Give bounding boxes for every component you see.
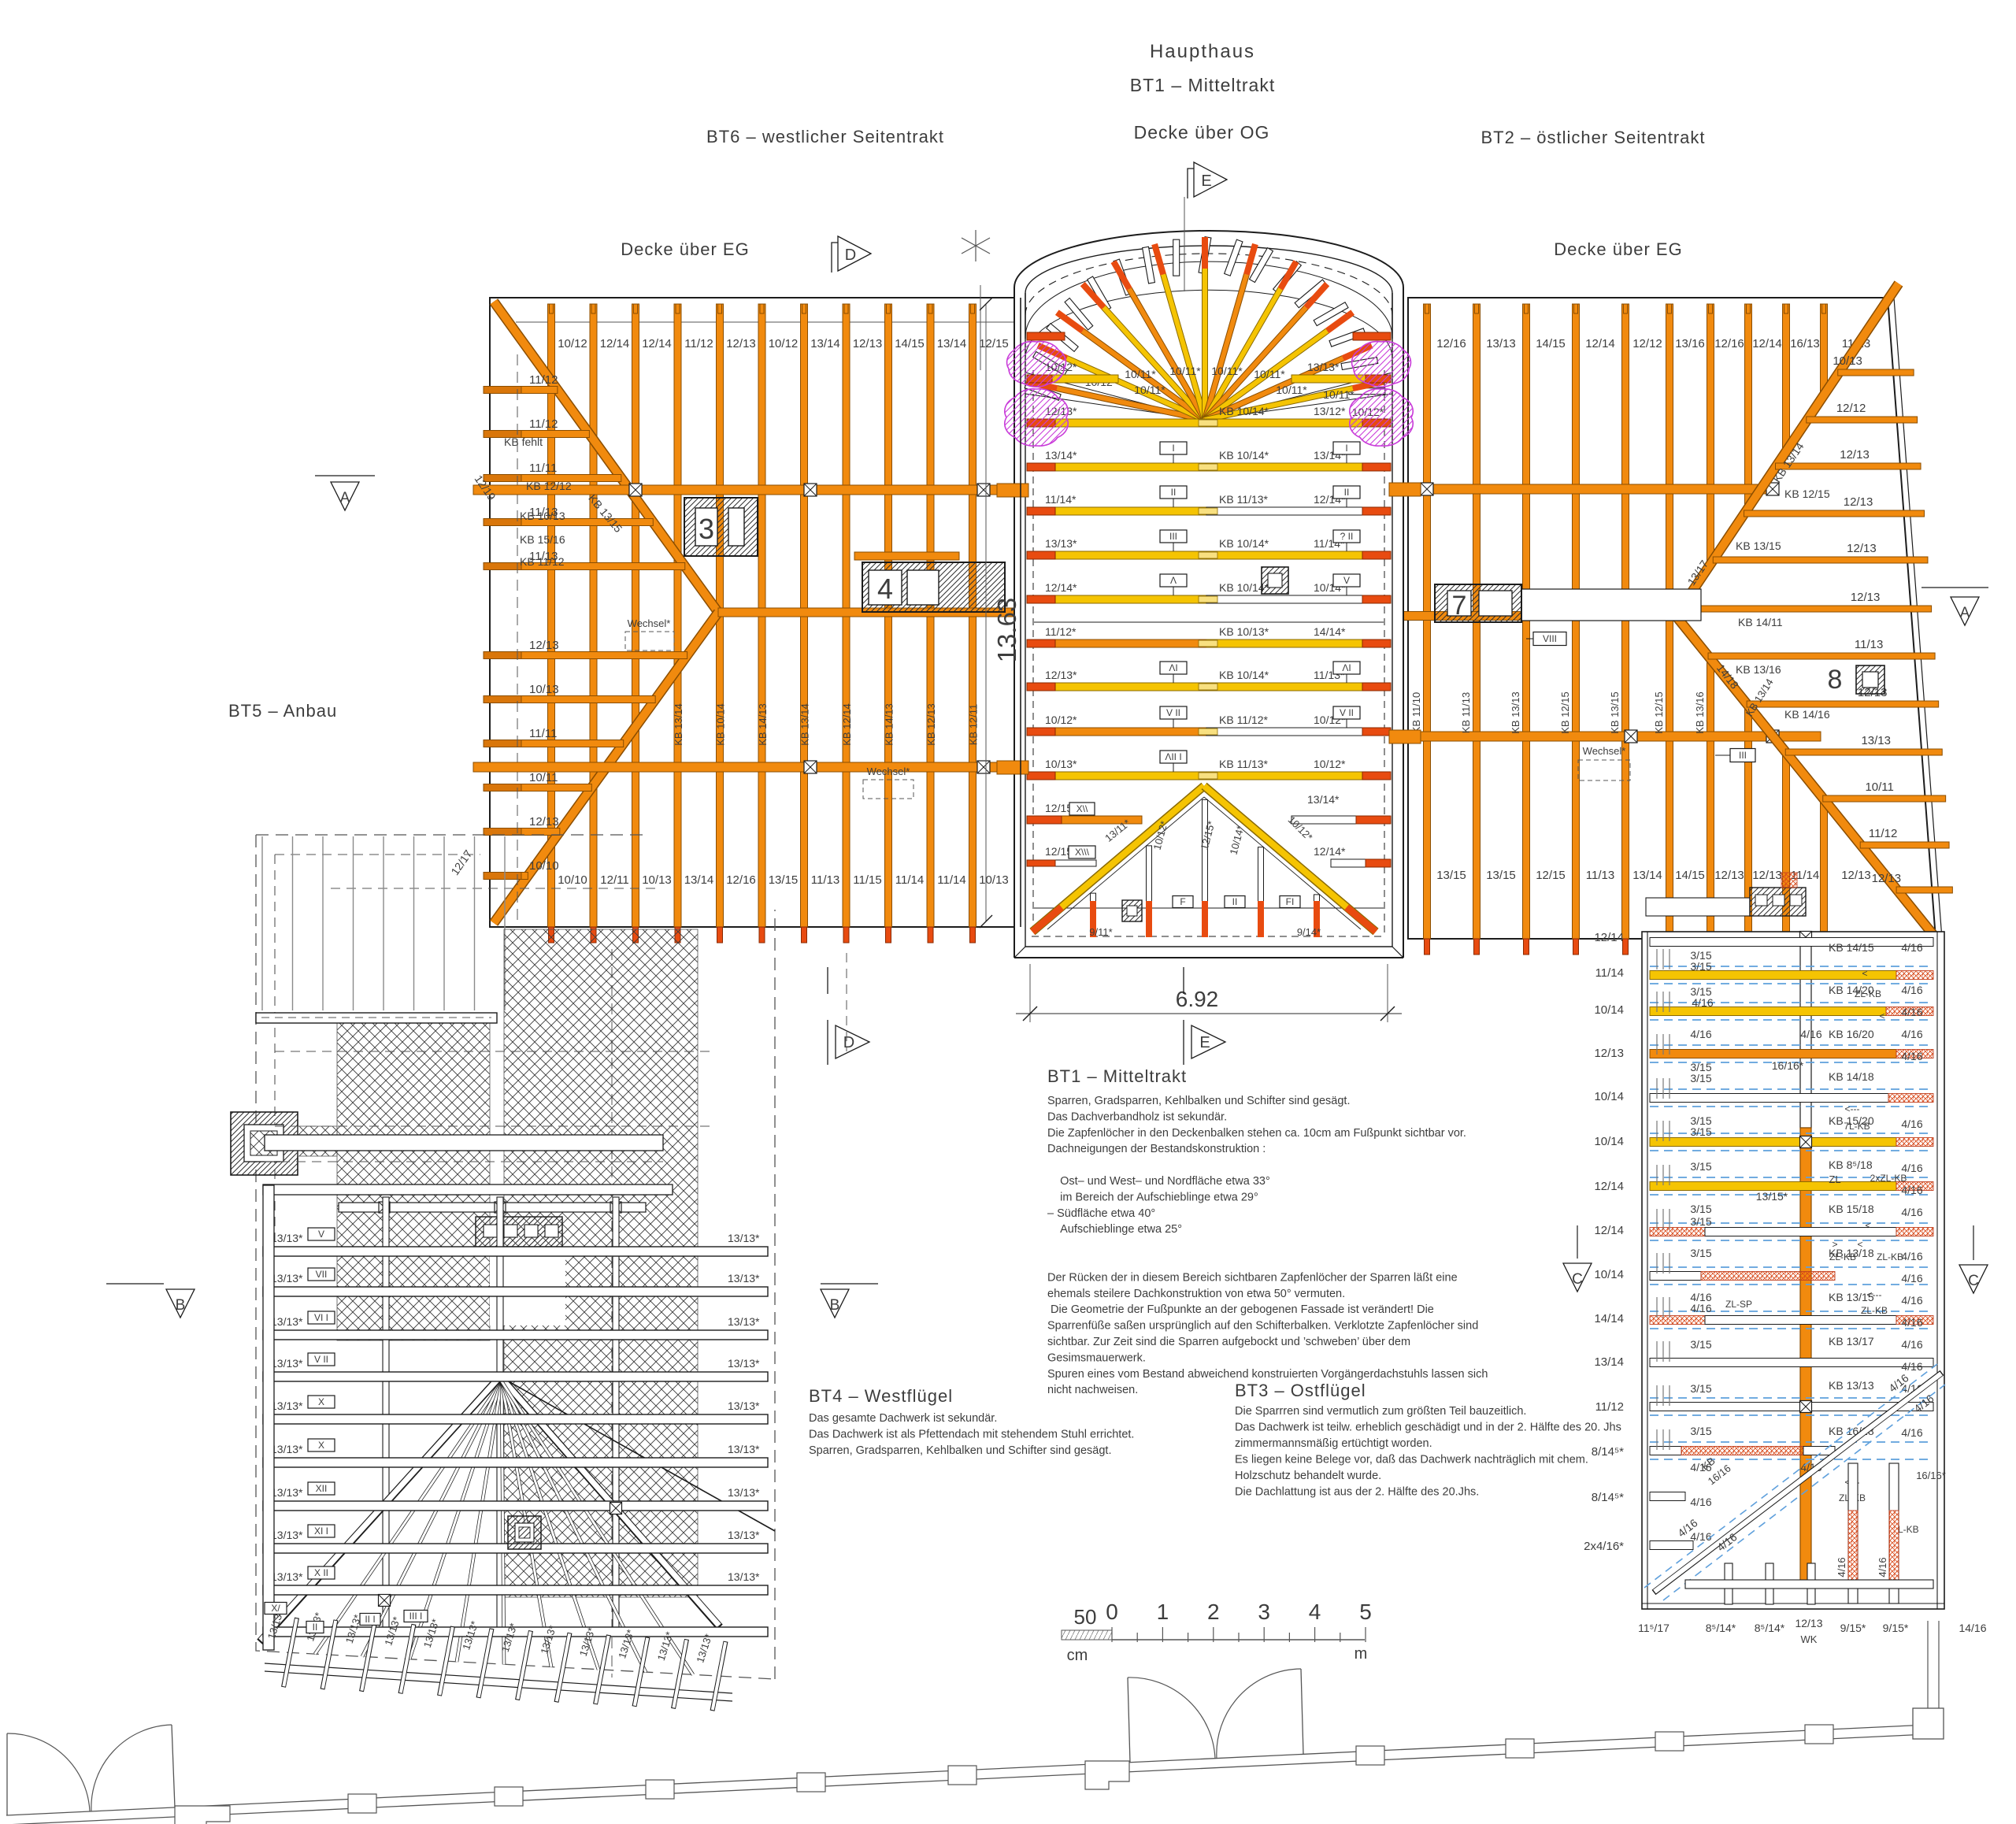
svg-text:11/13: 11/13 bbox=[811, 873, 839, 887]
svg-text:Das gesamte Dachwerk ist sekun: Das gesamte Dachwerk ist sekundär. bbox=[809, 1412, 997, 1425]
svg-text:3/15: 3/15 bbox=[1690, 1247, 1711, 1259]
svg-text:BT1 – Mitteltrakt: BT1 – Mitteltrakt bbox=[1047, 1066, 1187, 1086]
svg-text:2xZL-KB: 2xZL-KB bbox=[1870, 1173, 1907, 1184]
svg-text:Das Dachwerk ist teilw. erhebl: Das Dachwerk ist teilw. erheblich geschä… bbox=[1235, 1422, 1621, 1434]
svg-text:1: 1 bbox=[1157, 1600, 1169, 1624]
svg-text:4/16: 4/16 bbox=[1690, 1028, 1711, 1040]
svg-text:V II: V II bbox=[314, 1354, 328, 1365]
svg-text:B: B bbox=[176, 1297, 186, 1314]
svg-text:3/15: 3/15 bbox=[1690, 1215, 1711, 1228]
svg-text:VI I: VI I bbox=[314, 1312, 328, 1323]
svg-text:12/14: 12/14 bbox=[1752, 337, 1782, 350]
svg-text:KB 10/14*: KB 10/14* bbox=[1219, 537, 1269, 550]
svg-text:Sparrenfüße saßen ursprünglich: Sparrenfüße saßen ursprünglich auf den S… bbox=[1047, 1320, 1478, 1333]
svg-text:10/11*: 10/11* bbox=[1254, 368, 1285, 380]
svg-text:11/12: 11/12 bbox=[529, 417, 558, 431]
svg-text:KB 10/14: KB 10/14 bbox=[715, 703, 727, 746]
svg-text:VII: VII bbox=[316, 1269, 328, 1280]
svg-text:KB 15/18: KB 15/18 bbox=[1829, 1203, 1874, 1215]
svg-text:4/16: 4/16 bbox=[1901, 1184, 1922, 1196]
svg-text:12/13: 12/13 bbox=[1752, 869, 1782, 882]
svg-text:Decke über EG: Decke über EG bbox=[1554, 239, 1682, 259]
svg-text:13.63: 13.63 bbox=[992, 598, 1021, 663]
svg-text:13/13*: 13/13* bbox=[271, 1529, 303, 1541]
svg-text:BT4 – Westflügel: BT4 – Westflügel bbox=[809, 1386, 953, 1406]
svg-text:KB 11/12*: KB 11/12* bbox=[1219, 714, 1269, 726]
svg-text:13/16: 13/16 bbox=[1675, 337, 1705, 350]
svg-text:10/11: 10/11 bbox=[529, 771, 558, 784]
svg-text:14/15: 14/15 bbox=[1536, 337, 1566, 350]
svg-text:13/13*: 13/13* bbox=[1307, 361, 1340, 373]
svg-text:13/15*: 13/15* bbox=[1756, 1190, 1788, 1203]
svg-text:8⁵/14*: 8⁵/14* bbox=[1755, 1622, 1785, 1634]
svg-text:13/13: 13/13 bbox=[1486, 337, 1516, 350]
svg-text:X II: X II bbox=[314, 1567, 328, 1578]
svg-text:KB 12/13: KB 12/13 bbox=[925, 703, 937, 746]
svg-text:Wechsel*: Wechsel* bbox=[1583, 745, 1626, 757]
svg-text:13/13*: 13/13* bbox=[271, 1272, 303, 1285]
svg-text:KB 12/14: KB 12/14 bbox=[841, 703, 853, 746]
svg-text:4/16: 4/16 bbox=[1901, 1028, 1922, 1040]
svg-text:10/14: 10/14 bbox=[1594, 1090, 1624, 1103]
svg-text:Die Dachlattung ist aus der 2.: Die Dachlattung ist aus der 2. Hälfte de… bbox=[1235, 1486, 1479, 1499]
svg-text:Dachneigungen der Bestandskons: Dachneigungen der Bestandskonstruktion : bbox=[1047, 1143, 1266, 1155]
svg-text:9/14*: 9/14* bbox=[1297, 926, 1321, 938]
svg-text:E: E bbox=[1201, 172, 1211, 190]
svg-text:V: V bbox=[1343, 575, 1350, 586]
svg-text:10/13: 10/13 bbox=[979, 873, 1009, 887]
svg-text:Sparren, Gradsparren, Kehlbalk: Sparren, Gradsparren, Kehlbalken und Sch… bbox=[1047, 1095, 1350, 1107]
svg-text:12/13: 12/13 bbox=[1872, 872, 1902, 885]
svg-text:F: F bbox=[1180, 896, 1185, 907]
svg-text:12/14*: 12/14* bbox=[1314, 845, 1346, 858]
svg-text:13/13*: 13/13* bbox=[271, 1400, 303, 1412]
svg-text:12/12: 12/12 bbox=[1632, 337, 1662, 350]
svg-text:X: X bbox=[318, 1440, 324, 1451]
svg-text:13/13*: 13/13* bbox=[271, 1570, 303, 1583]
svg-text:WK: WK bbox=[1801, 1633, 1818, 1645]
svg-text:KB 11/12: KB 11/12 bbox=[520, 555, 565, 568]
svg-text:X/: X/ bbox=[271, 1603, 280, 1614]
svg-text:Decke über OG: Decke über OG bbox=[1134, 122, 1270, 143]
svg-text:3/15: 3/15 bbox=[1690, 1203, 1711, 1215]
svg-text:KB 10/13*: KB 10/13* bbox=[1219, 625, 1269, 638]
svg-text:4/16: 4/16 bbox=[1690, 1496, 1711, 1508]
svg-text:Holzschutz behandelt wurde.: Holzschutz behandelt wurde. bbox=[1235, 1470, 1381, 1482]
svg-text:KB 14/13: KB 14/13 bbox=[757, 703, 769, 746]
svg-text:3/15: 3/15 bbox=[1690, 1338, 1711, 1351]
svg-text:B: B bbox=[830, 1297, 840, 1314]
svg-text:10/10: 10/10 bbox=[529, 859, 559, 873]
svg-text:ZL: ZL bbox=[1829, 1173, 1840, 1185]
svg-text:Das Dachwerk ist als Pfettenda: Das Dachwerk ist als Pfettendach mit ste… bbox=[809, 1429, 1134, 1441]
svg-text:14/15: 14/15 bbox=[895, 337, 925, 350]
svg-text:10/11*: 10/11* bbox=[1134, 384, 1165, 396]
svg-text:13/13*: 13/13* bbox=[271, 1486, 303, 1499]
svg-text:14/14: 14/14 bbox=[1594, 1312, 1624, 1325]
svg-text:KB 13/16: KB 13/16 bbox=[1736, 663, 1781, 676]
svg-text:C: C bbox=[1572, 1271, 1583, 1288]
svg-text:10/14: 10/14 bbox=[1594, 1003, 1624, 1017]
svg-text:KB 8⁵/18: KB 8⁵/18 bbox=[1829, 1159, 1873, 1171]
svg-text:11/14: 11/14 bbox=[895, 873, 924, 887]
svg-text:Die Geometrie der Fußpunkte an: Die Geometrie der Fußpunkte an der gebog… bbox=[1047, 1303, 1434, 1316]
svg-text:4/16: 4/16 bbox=[1901, 984, 1922, 996]
svg-text:2x4/16*: 2x4/16* bbox=[1584, 1540, 1624, 1553]
svg-text:KB 11/10: KB 11/10 bbox=[1410, 692, 1422, 734]
svg-text:Es liegen keine Belege vor, da: Es liegen keine Belege vor, daß das Dach… bbox=[1235, 1454, 1588, 1466]
svg-text:13/14: 13/14 bbox=[1632, 869, 1662, 882]
svg-text:4/16: 4/16 bbox=[1901, 1360, 1922, 1373]
svg-text:KB 13/17: KB 13/17 bbox=[1829, 1335, 1874, 1348]
svg-text:12/16: 12/16 bbox=[1436, 337, 1466, 350]
svg-text:4/16: 4/16 bbox=[1901, 1338, 1922, 1351]
svg-text:10/14: 10/14 bbox=[1594, 1135, 1624, 1148]
svg-text:ZL-KB: ZL-KB bbox=[1861, 1305, 1888, 1316]
svg-text:KB 12/12: KB 12/12 bbox=[526, 480, 572, 492]
svg-text:4/16: 4/16 bbox=[1901, 1118, 1922, 1130]
svg-text:12/15: 12/15 bbox=[1536, 869, 1566, 882]
svg-text:KB 16/20: KB 16/20 bbox=[1829, 1028, 1874, 1040]
svg-text:ΛI: ΛI bbox=[1342, 662, 1351, 673]
svg-text:10/13: 10/13 bbox=[642, 873, 672, 887]
svg-text:13/14: 13/14 bbox=[810, 337, 840, 350]
svg-text:Die Sparrren sind vermutlich z: Die Sparrren sind vermutlich zum größten… bbox=[1235, 1405, 1526, 1418]
svg-text:4/16: 4/16 bbox=[1800, 1028, 1821, 1040]
svg-text:12/13: 12/13 bbox=[529, 639, 559, 652]
svg-text:13/13*: 13/13* bbox=[271, 1443, 303, 1455]
svg-text:13/14*: 13/14* bbox=[1307, 793, 1340, 806]
svg-text:<: < bbox=[1862, 968, 1867, 979]
svg-text:BT3 – Ostflügel: BT3 – Ostflügel bbox=[1235, 1381, 1366, 1400]
svg-text:13/15: 13/15 bbox=[1486, 869, 1516, 882]
svg-text:V II: V II bbox=[1340, 707, 1354, 718]
svg-text:13/13*: 13/13* bbox=[271, 1315, 303, 1328]
svg-text:13/14: 13/14 bbox=[684, 873, 714, 887]
svg-text:II: II bbox=[1171, 487, 1177, 498]
svg-text:10/12*: 10/12* bbox=[1314, 758, 1346, 770]
svg-text:11/13: 11/13 bbox=[1586, 869, 1614, 882]
svg-text:10/11*: 10/11* bbox=[1169, 365, 1201, 377]
svg-text:9/15*: 9/15* bbox=[1840, 1622, 1866, 1634]
svg-text:KB 14/11: KB 14/11 bbox=[1738, 616, 1783, 628]
svg-text:11⁵/17: 11⁵/17 bbox=[1638, 1622, 1669, 1634]
svg-text:V II: V II bbox=[1166, 707, 1180, 718]
svg-text:KB 11/13*: KB 11/13* bbox=[1219, 493, 1269, 506]
svg-text:13/13*: 13/13* bbox=[728, 1272, 760, 1285]
svg-text:KB 15/16: KB 15/16 bbox=[520, 533, 565, 546]
svg-text:13/12*: 13/12* bbox=[1314, 405, 1346, 417]
svg-text:KB 13/13: KB 13/13 bbox=[1510, 691, 1521, 734]
svg-text:4/16: 4/16 bbox=[1901, 941, 1922, 954]
svg-text:I: I bbox=[1172, 443, 1174, 454]
svg-text:KB fehlt: KB fehlt bbox=[504, 436, 543, 448]
svg-text:11/12: 11/12 bbox=[1869, 827, 1897, 840]
svg-text:9/11*: 9/11* bbox=[1089, 926, 1112, 938]
svg-text:9/15*: 9/15* bbox=[1883, 1622, 1909, 1634]
svg-text:KB 13/15: KB 13/15 bbox=[1736, 539, 1781, 552]
svg-text:7: 7 bbox=[1452, 591, 1467, 621]
svg-text:III I: III I bbox=[409, 1611, 423, 1622]
svg-text:11/14: 11/14 bbox=[937, 873, 965, 887]
svg-text:II: II bbox=[313, 1622, 318, 1633]
svg-text:4/16: 4/16 bbox=[1877, 1557, 1888, 1577]
svg-text:Ost– und West– und Nordfläche: Ost– und West– und Nordfläche etwa 33° bbox=[1047, 1175, 1270, 1188]
svg-text:<---: <--- bbox=[1867, 1289, 1882, 1300]
svg-text:3/15: 3/15 bbox=[1690, 1125, 1711, 1138]
svg-text:4/16: 4/16 bbox=[1690, 1302, 1711, 1314]
svg-text:KB 12/15: KB 12/15 bbox=[1653, 691, 1665, 734]
svg-text:KB 10/14*: KB 10/14* bbox=[1219, 669, 1269, 681]
svg-text:KB 14/18: KB 14/18 bbox=[1829, 1070, 1874, 1083]
svg-text:12/14: 12/14 bbox=[1594, 1224, 1624, 1237]
svg-text:12/17: 12/17 bbox=[448, 847, 474, 877]
svg-text:KB 10/14*: KB 10/14* bbox=[1219, 405, 1269, 417]
svg-text:Die Zapfenlöcher in den Decken: Die Zapfenlöcher in den Deckenbalken ste… bbox=[1047, 1127, 1466, 1140]
svg-text:X\\: X\\ bbox=[1077, 803, 1088, 814]
svg-text:13/14: 13/14 bbox=[1594, 1355, 1624, 1369]
svg-text:13/13*: 13/13* bbox=[271, 1357, 303, 1370]
svg-text:10/14: 10/14 bbox=[1594, 1268, 1624, 1281]
svg-text:8/14⁵*: 8/14⁵* bbox=[1592, 1491, 1624, 1504]
svg-text:4/16: 4/16 bbox=[1901, 1206, 1922, 1218]
svg-text:10/10: 10/10 bbox=[558, 873, 587, 887]
svg-text:FI: FI bbox=[1286, 896, 1295, 907]
svg-text:II I: II I bbox=[365, 1614, 375, 1625]
svg-text:11/12: 11/12 bbox=[1595, 1400, 1624, 1414]
svg-text:14/14*: 14/14* bbox=[1314, 625, 1346, 638]
svg-text:4: 4 bbox=[1309, 1600, 1321, 1624]
svg-text:12/13: 12/13 bbox=[529, 815, 559, 829]
svg-text:13/13*: 13/13* bbox=[728, 1486, 760, 1499]
svg-text:13/13*: 13/13* bbox=[728, 1529, 760, 1541]
svg-text:16/16*: 16/16* bbox=[1772, 1059, 1804, 1072]
svg-text:10/13: 10/13 bbox=[529, 683, 559, 696]
svg-text:ZL-SP: ZL-SP bbox=[1725, 1299, 1752, 1310]
svg-text:Wechsel*: Wechsel* bbox=[867, 766, 910, 777]
svg-text:V: V bbox=[318, 1229, 324, 1240]
svg-text:KB 14/13: KB 14/13 bbox=[884, 703, 895, 746]
svg-text:12/14*: 12/14* bbox=[1045, 581, 1077, 594]
svg-text:11/13: 11/13 bbox=[1855, 638, 1883, 651]
svg-text:4/16: 4/16 bbox=[1901, 1272, 1922, 1285]
svg-text:im Bereich der Aufschieblinge: im Bereich der Aufschieblinge etwa 29° bbox=[1047, 1191, 1258, 1203]
svg-text:12/13: 12/13 bbox=[726, 337, 756, 350]
svg-text:Der Rücken der in diesem Berei: Der Rücken der in diesem Bereich sichtba… bbox=[1047, 1271, 1458, 1284]
svg-text:Wechsel*: Wechsel* bbox=[628, 617, 671, 629]
svg-text:<---: <--- bbox=[1845, 1103, 1860, 1114]
svg-text:11/15: 11/15 bbox=[853, 873, 881, 887]
svg-text:Decke über EG: Decke über EG bbox=[621, 239, 749, 259]
svg-text:Gesimsmauerwerk.: Gesimsmauerwerk. bbox=[1047, 1351, 1146, 1364]
svg-text:C: C bbox=[1968, 1273, 1979, 1289]
svg-text:BT2 – östlicher Seitentrakt: BT2 – östlicher Seitentrakt bbox=[1480, 128, 1705, 147]
svg-text:8/14⁵*: 8/14⁵* bbox=[1592, 1445, 1624, 1459]
svg-text:12/14: 12/14 bbox=[600, 337, 630, 350]
svg-text:X: X bbox=[318, 1396, 324, 1407]
svg-text:VIII: VIII bbox=[1543, 633, 1557, 644]
svg-text:12/11: 12/11 bbox=[600, 873, 628, 887]
svg-text:13/13*: 13/13* bbox=[728, 1400, 760, 1412]
svg-text:<: < bbox=[1879, 1010, 1884, 1021]
svg-text:KB 12/11: KB 12/11 bbox=[968, 704, 980, 746]
svg-text:ZL-KB: ZL-KB bbox=[1855, 988, 1881, 999]
svg-text:A: A bbox=[340, 490, 350, 506]
svg-text:13/14*: 13/14* bbox=[1045, 449, 1077, 462]
svg-text:D: D bbox=[845, 247, 856, 264]
svg-text:10/11*: 10/11* bbox=[1323, 388, 1354, 401]
svg-text:4/16: 4/16 bbox=[1901, 1250, 1922, 1262]
svg-text:12/16: 12/16 bbox=[1714, 337, 1744, 350]
svg-text:11/11: 11/11 bbox=[529, 462, 557, 475]
svg-text:10/11: 10/11 bbox=[1865, 780, 1893, 794]
svg-text:4/16: 4/16 bbox=[1901, 1426, 1922, 1439]
svg-text:8⁵/14*: 8⁵/14* bbox=[1706, 1622, 1736, 1634]
svg-text:13/13*: 13/13* bbox=[728, 1232, 760, 1244]
svg-text:III: III bbox=[1169, 531, 1177, 542]
svg-text:12/13: 12/13 bbox=[1847, 542, 1877, 555]
svg-text:12/13: 12/13 bbox=[853, 337, 883, 350]
svg-text:12/13: 12/13 bbox=[1714, 869, 1744, 882]
svg-text:E: E bbox=[1199, 1034, 1210, 1051]
svg-text:Haupthaus: Haupthaus bbox=[1150, 41, 1255, 62]
svg-text:12/13: 12/13 bbox=[1840, 448, 1870, 462]
svg-text:12/14: 12/14 bbox=[1594, 931, 1624, 944]
svg-text:14/15: 14/15 bbox=[1675, 869, 1705, 882]
svg-text:Sparren, Gradsparren, Kehlbalk: Sparren, Gradsparren, Kehlbalken und Sch… bbox=[809, 1444, 1111, 1457]
svg-text:12/13: 12/13 bbox=[1795, 1617, 1822, 1629]
svg-text:I: I bbox=[1345, 443, 1347, 454]
svg-text:<: < bbox=[1857, 1239, 1862, 1250]
svg-text:5: 5 bbox=[1359, 1600, 1372, 1624]
svg-text:2: 2 bbox=[1207, 1600, 1220, 1624]
svg-text:50: 50 bbox=[1074, 1605, 1097, 1629]
svg-text:10/13*: 10/13* bbox=[1045, 758, 1077, 770]
svg-text:10/11*: 10/11* bbox=[1276, 384, 1307, 396]
svg-text:10/12*: 10/12* bbox=[1045, 714, 1077, 726]
svg-text:12/16: 12/16 bbox=[726, 873, 756, 887]
svg-text:7L-KB: 7L-KB bbox=[1844, 1121, 1870, 1132]
svg-text:3/15: 3/15 bbox=[1690, 960, 1711, 973]
svg-text:4: 4 bbox=[877, 573, 893, 605]
svg-text:8: 8 bbox=[1828, 665, 1843, 695]
svg-text:16/13: 16/13 bbox=[1790, 337, 1820, 350]
svg-text:III: III bbox=[1739, 750, 1747, 761]
svg-text:ehemals steilere Dachkonstrukt: ehemals steilere Dachkonstruktion von et… bbox=[1047, 1288, 1345, 1300]
svg-text:4/16: 4/16 bbox=[1690, 1530, 1711, 1543]
svg-text:BT5 – Anbau: BT5 – Anbau bbox=[228, 701, 337, 721]
svg-text:13/13*: 13/13* bbox=[728, 1357, 760, 1370]
svg-text:nicht nachweisen.: nicht nachweisen. bbox=[1047, 1384, 1138, 1396]
svg-text:KB 11/13: KB 11/13 bbox=[1460, 692, 1472, 734]
svg-text:zimmermannsmäßig ertüchtigt wo: zimmermannsmäßig ertüchtigt worden. bbox=[1235, 1437, 1432, 1450]
svg-text:? II: ? II bbox=[1340, 531, 1354, 542]
svg-text:KB 13/14: KB 13/14 bbox=[673, 703, 684, 746]
svg-text:KB 13/13: KB 13/13 bbox=[1829, 1379, 1874, 1392]
svg-text:12/13*: 12/13* bbox=[1045, 669, 1077, 681]
svg-text:KB 13/14: KB 13/14 bbox=[799, 703, 811, 746]
svg-text:3/15: 3/15 bbox=[1690, 1072, 1711, 1084]
svg-text:12/13: 12/13 bbox=[1844, 495, 1873, 509]
svg-text:10/12: 10/12 bbox=[769, 337, 799, 350]
svg-text:13/13*: 13/13* bbox=[728, 1315, 760, 1328]
svg-text:KB 14/15: KB 14/15 bbox=[1829, 941, 1874, 954]
svg-text:10/13: 10/13 bbox=[1833, 354, 1862, 368]
svg-text:KB 10/14*: KB 10/14* bbox=[1219, 449, 1269, 462]
svg-text:D: D bbox=[843, 1034, 854, 1051]
svg-text:KB 10/13: KB 10/13 bbox=[520, 510, 565, 522]
svg-text:13/15: 13/15 bbox=[769, 873, 799, 887]
svg-text:ΛII I: ΛII I bbox=[1165, 751, 1181, 762]
svg-text:10/11*: 10/11* bbox=[1211, 365, 1243, 377]
svg-text:10/12: 10/12 bbox=[558, 337, 587, 350]
svg-text:<: < bbox=[1865, 1220, 1870, 1231]
svg-text:12/15: 12/15 bbox=[979, 337, 1009, 350]
svg-text:6.92: 6.92 bbox=[1176, 987, 1219, 1011]
svg-text:13/13*: 13/13* bbox=[1045, 537, 1077, 550]
svg-text:4/16: 4/16 bbox=[1901, 1050, 1922, 1062]
svg-text:11/12: 11/12 bbox=[529, 373, 558, 387]
svg-text:10/11*: 10/11* bbox=[1125, 368, 1156, 380]
svg-text:12/14: 12/14 bbox=[1585, 337, 1615, 350]
svg-text:ZL-KB: ZL-KB bbox=[1829, 1251, 1856, 1262]
svg-text:12/13: 12/13 bbox=[1841, 869, 1871, 882]
svg-text:>: > bbox=[1832, 1239, 1837, 1250]
svg-text:3: 3 bbox=[699, 513, 714, 545]
svg-text:4/16: 4/16 bbox=[1901, 1294, 1922, 1307]
svg-text:12/14: 12/14 bbox=[1594, 1180, 1624, 1193]
svg-text:11/12*: 11/12* bbox=[1045, 625, 1077, 638]
svg-text:Spuren eines vom Bestand abwei: Spuren eines vom Bestand abweichend kons… bbox=[1047, 1368, 1488, 1381]
svg-text:ΛI: ΛI bbox=[1169, 662, 1177, 673]
svg-text:12/13: 12/13 bbox=[1851, 591, 1881, 604]
svg-text:KB 11/13*: KB 11/13* bbox=[1219, 758, 1269, 770]
svg-text:4/16: 4/16 bbox=[1901, 1006, 1922, 1018]
svg-text:13/13: 13/13 bbox=[1861, 734, 1891, 747]
svg-text:13/13*: 13/13* bbox=[271, 1232, 303, 1244]
svg-text:Das Dachverbandholz ist sekund: Das Dachverbandholz ist sekundär. bbox=[1047, 1110, 1227, 1123]
svg-text:BT1 – Mitteltrakt: BT1 – Mitteltrakt bbox=[1130, 75, 1275, 95]
svg-text:4/16: 4/16 bbox=[1836, 1557, 1847, 1577]
svg-text:II: II bbox=[1232, 896, 1238, 907]
svg-text:11/14: 11/14 bbox=[1595, 966, 1624, 980]
svg-text:16/16*: 16/16* bbox=[1916, 1470, 1946, 1481]
svg-text:Aufschieblinge etwa 25°: Aufschieblinge etwa 25° bbox=[1047, 1223, 1182, 1236]
svg-text:13/13*: 13/13* bbox=[728, 1570, 760, 1583]
svg-text:KB 13/16: KB 13/16 bbox=[1694, 691, 1706, 734]
svg-text:XII: XII bbox=[316, 1483, 328, 1494]
svg-text:XI I: XI I bbox=[314, 1526, 328, 1537]
svg-text:13/13*: 13/13* bbox=[728, 1443, 760, 1455]
svg-text:A: A bbox=[1960, 605, 1970, 621]
svg-text:ZL-KB: ZL-KB bbox=[1877, 1251, 1903, 1262]
svg-text:BT6 – westlicher Seitentrakt: BT6 – westlicher Seitentrakt bbox=[706, 127, 944, 146]
svg-text:3/15: 3/15 bbox=[1690, 1160, 1711, 1173]
svg-text:12/14: 12/14 bbox=[642, 337, 672, 350]
svg-text:13/15: 13/15 bbox=[1436, 869, 1466, 882]
svg-text:14/16: 14/16 bbox=[1959, 1622, 1986, 1634]
svg-text:11/12: 11/12 bbox=[684, 337, 713, 350]
svg-text:13/13*: 13/13* bbox=[694, 1633, 714, 1664]
svg-text:3: 3 bbox=[1258, 1600, 1270, 1624]
svg-text:13/14: 13/14 bbox=[937, 337, 967, 350]
svg-text:X\\\: X\\\ bbox=[1075, 847, 1090, 858]
svg-text:11/14*: 11/14* bbox=[1045, 493, 1077, 506]
svg-text:3/15: 3/15 bbox=[1690, 1382, 1711, 1395]
svg-text:m: m bbox=[1354, 1645, 1368, 1663]
svg-text:12/13: 12/13 bbox=[1594, 1047, 1624, 1060]
svg-text:KB 14/16: KB 14/16 bbox=[1784, 708, 1830, 721]
